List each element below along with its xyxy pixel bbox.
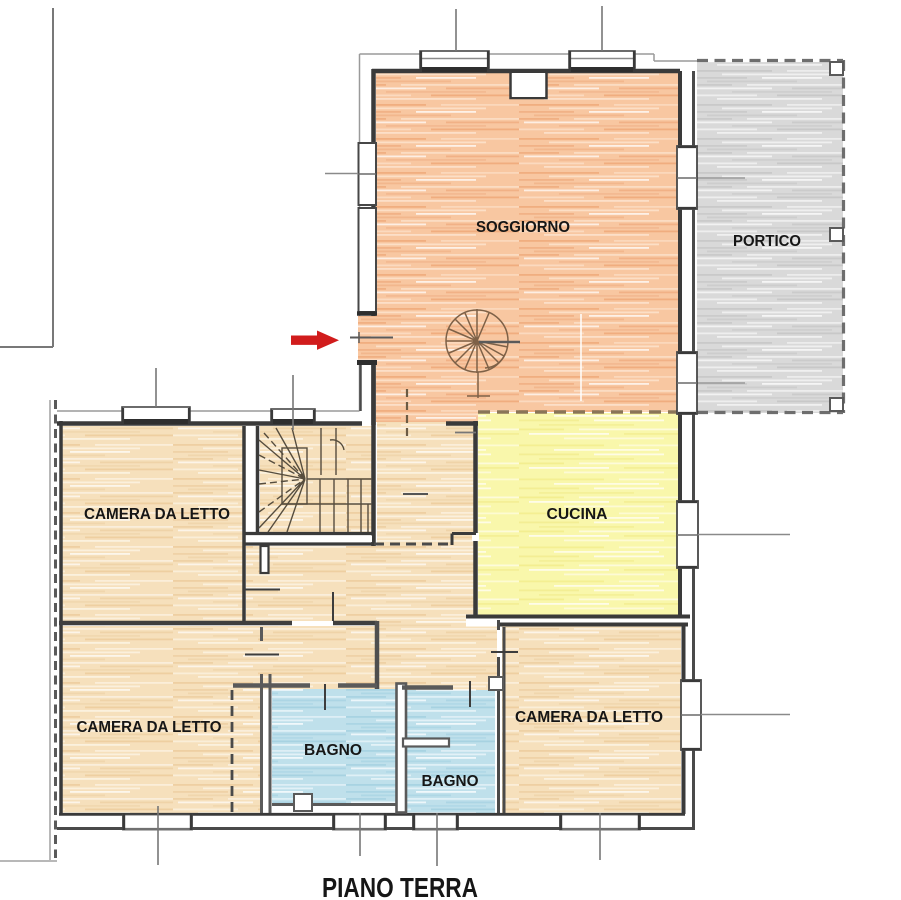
svg-text:CAMERA DA LETTO: CAMERA DA LETTO [515, 709, 663, 726]
svg-text:PIANO TERRA: PIANO TERRA [322, 872, 478, 900]
svg-text:SOGGIORNO: SOGGIORNO [476, 219, 570, 236]
svg-text:CAMERA DA LETTO: CAMERA DA LETTO [77, 719, 222, 736]
svg-text:BAGNO: BAGNO [304, 742, 362, 759]
svg-text:CUCINA: CUCINA [547, 506, 608, 523]
svg-text:PORTICO: PORTICO [733, 233, 801, 250]
svg-text:CAMERA DA LETTO: CAMERA DA LETTO [84, 506, 230, 523]
svg-text:BAGNO: BAGNO [422, 773, 479, 790]
